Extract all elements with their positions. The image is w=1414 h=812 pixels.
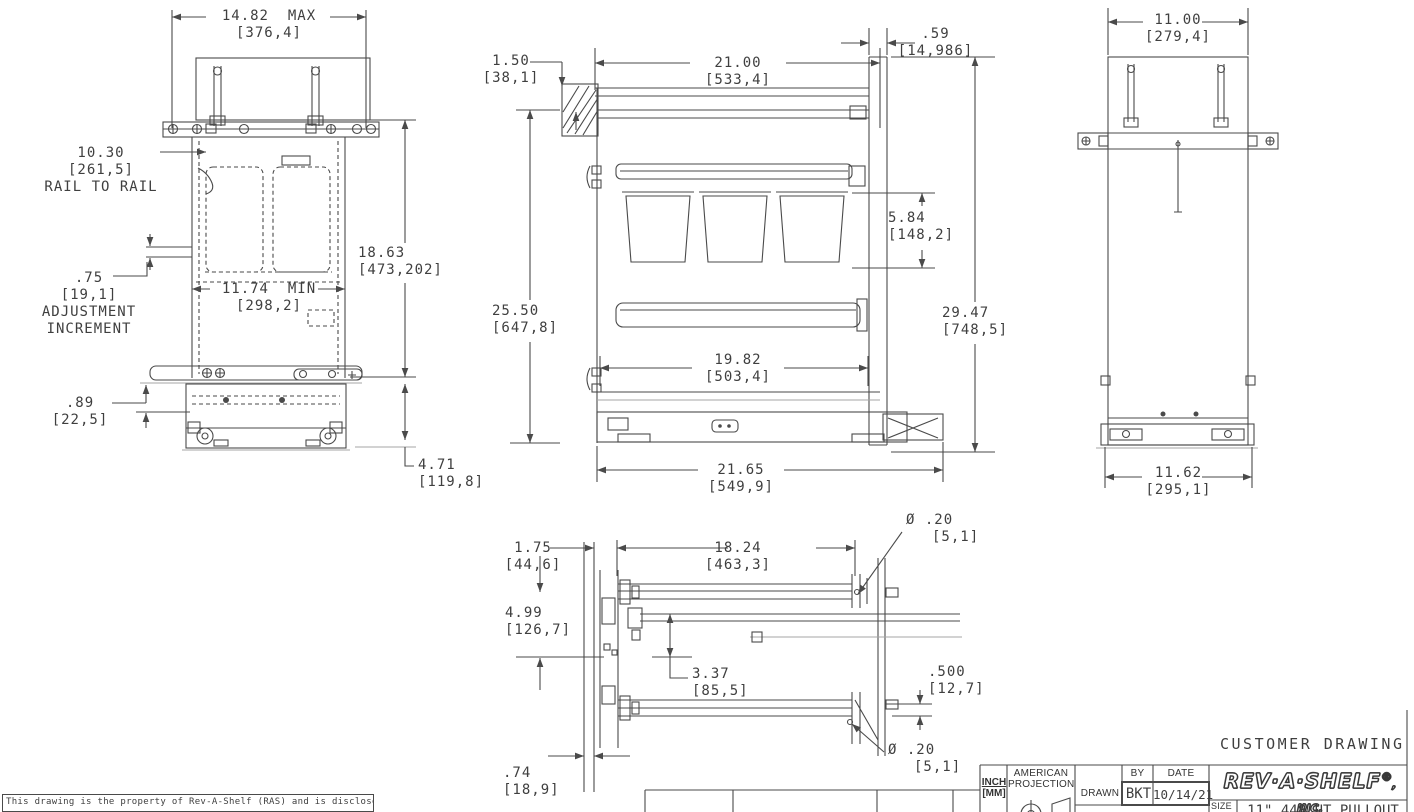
- drawing-sheet: 14.82 MAX[376,4] 10.30[261,5]RAIL TO RAI…: [0, 0, 1414, 812]
- registered-mark: ®: [1381, 770, 1392, 783]
- dim-side-base-width: 11.62[295,1]: [1105, 465, 1252, 499]
- dim-plan-front-offset: 1.75[44,6]: [498, 540, 568, 574]
- dim-plan-rail-offset: 4.99[126,7]: [505, 605, 571, 639]
- end-view-linework: [1078, 8, 1278, 488]
- dim-min-width: 11.74 MIN[298,2]: [194, 281, 344, 315]
- dim-cabinet-height: 25.50[647,8]: [492, 303, 558, 337]
- dim-depth: 21.00[533,4]: [660, 55, 816, 89]
- dim-plan-gap: .500[12,7]: [928, 664, 985, 698]
- drawn-label: DRAWN: [1078, 788, 1122, 799]
- projection-label: AMERICAN PROJECTION: [1008, 768, 1074, 790]
- dim-overall-depth: 21.65[549,9]: [660, 462, 822, 496]
- units-mm-label: [MM]: [981, 788, 1007, 799]
- side-view-linework: [510, 28, 995, 482]
- dim-plan-hole-front: Ø .20[5,1]: [906, 512, 979, 546]
- dim-base-height: 4.71[119,8]: [418, 457, 484, 491]
- dim-slide-height: .89[22,5]: [45, 395, 115, 429]
- dim-shelf-depth: 19.82[503,4]: [660, 352, 816, 386]
- dim-plan-slide-length: 18.24[463,3]: [660, 540, 816, 574]
- front-view-linework: [112, 10, 416, 466]
- projection-symbol-icon: [1017, 798, 1070, 812]
- dim-front-height: 18.63[473,202]: [358, 245, 443, 279]
- dim-front-width: 14.82 MAX[376,4]: [178, 8, 360, 42]
- date-value: 10/14/21: [1153, 787, 1209, 802]
- dim-bin-height: 5.84[148,2]: [888, 210, 954, 244]
- dim-top-gap: 1.50[38,1]: [478, 53, 544, 87]
- dim-rail-to-rail: 10.30[261,5]RAIL TO RAIL: [40, 145, 162, 196]
- dim-plan-hole-rear: Ø .20[5,1]: [888, 742, 961, 776]
- units-inch-label: INCH: [981, 777, 1007, 788]
- dim-side-width: 11.00[279,4]: [1108, 12, 1248, 46]
- units-label: INCH [MM]: [981, 777, 1007, 799]
- customer-drawing-label: CUSTOMER DRAWING: [1220, 735, 1405, 753]
- date-label: DATE: [1153, 768, 1209, 779]
- dim-plan-rear-offset: .74[18,9]: [503, 765, 560, 799]
- by-label: BY: [1122, 768, 1153, 779]
- dim-door-thickness: .59[14,986]: [893, 26, 978, 60]
- dim-adjustment-increment: .75[19,1]ADJUSTMENTINCREMENT: [38, 270, 140, 338]
- dim-plan-inner-offset: 3.37[85,5]: [692, 666, 749, 700]
- drawing-title: 11" 448 UT PULLOUT: [1240, 803, 1406, 812]
- drawn-by-value: BKT: [1124, 786, 1153, 802]
- dim-overall-height: 29.47[748,5]: [942, 305, 1008, 339]
- disclaimer-text: This drawing is the property of Rev-A-Sh…: [2, 794, 374, 812]
